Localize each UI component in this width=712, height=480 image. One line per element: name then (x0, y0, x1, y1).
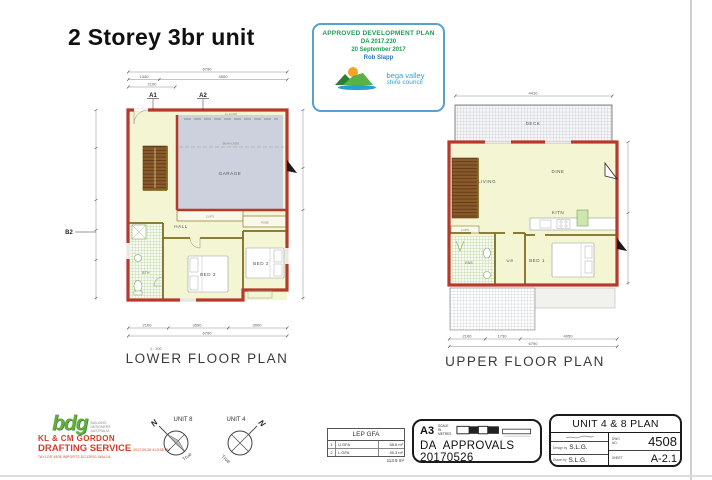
scale-caption-line2: METRES (438, 433, 452, 437)
bdg-association: BUILDING DESIGNERS AUSTRALIA (90, 421, 110, 433)
drawing-title: UNIT 4 & 8 PLAN (551, 416, 680, 433)
scale-caption: SCALE IN METRES (438, 425, 452, 436)
sheet-label: SHEET (612, 457, 623, 461)
stamp-line-2: DA 2017.230 (314, 39, 443, 45)
row-num: 1 (328, 441, 336, 448)
compass-unit4-label: UNIT 4 (227, 417, 247, 423)
drawn-by-cell: Drawn by S.L.G. (551, 455, 608, 467)
north-arrow-icon: N (149, 418, 160, 429)
sheet-size-label: A3 (420, 425, 434, 437)
lep-table-title: LEP GFA (327, 428, 405, 440)
stairs-lower (143, 146, 167, 190)
design-by-cell: Design by S.L.G. (551, 442, 608, 455)
drawn-by-label: Drawn by (553, 458, 566, 462)
garage-label: GARAGE (219, 171, 242, 176)
sheet-no-value: A-2.1 (651, 453, 677, 465)
dim-bot-seg1: 2100 (143, 323, 153, 328)
row-num: 2 (328, 449, 336, 456)
bdg-logo: bdg (52, 415, 87, 433)
scan-edge-bottom (0, 475, 712, 477)
compass-unit-4: UNIT 4 N True (210, 411, 272, 469)
dim-top-sub: 2100 (148, 82, 158, 87)
stamp-line-1: APPROVED DEVELOPMENT PLAN (314, 30, 443, 37)
section-a1: A1 (149, 93, 157, 99)
lower-floor-plan: 21.24 RID BEAM OVER CUP'S ROBE (60, 58, 315, 388)
row-value: 45.3 m² (379, 449, 404, 456)
da-approvals-box: A3 SCALE IN METRES DA APPROVALS 20170526 (412, 419, 542, 463)
row-value: 68.6 m² (379, 441, 404, 448)
dim-up-seg3: 4050 (564, 334, 574, 339)
section-a2: A2 (199, 93, 207, 99)
deck-label: DECK (526, 121, 541, 126)
dim-bot-seg2: 3590 (193, 323, 203, 328)
scan-edge-right (690, 0, 692, 480)
scale-bar-icon (456, 425, 534, 437)
true-north-label: True (220, 454, 232, 465)
beam-note: BEAM OVER (223, 142, 240, 146)
compass-unit8-label: UNIT 8 (174, 417, 194, 423)
stamp-line-3: 20 September 2017 (314, 47, 443, 53)
dwg-no-cell: DWG NO. 4508 (609, 433, 680, 451)
stairs-upper (452, 158, 478, 218)
council-name-line2: shire council (387, 80, 425, 87)
dwg-no-label: DWG NO. (612, 438, 620, 445)
kitn-label: KITN (552, 210, 564, 215)
upper-cups-label: CUP'S (461, 228, 469, 232)
dim-top-seg1: 1340 (140, 74, 150, 79)
assoc-line3: AUSTRALIA (90, 429, 110, 433)
da-approvals-text: DA APPROVALS 20170526 (420, 440, 534, 464)
upper-plan-title: UPPER FLOOR PLAN (445, 354, 605, 369)
table-row: 1 U.GFA 68.6 m² (328, 441, 404, 449)
dwg-label-line2: NO. (612, 442, 620, 446)
ens-label: ENS (465, 261, 473, 265)
garage-floor (177, 115, 283, 210)
bed3-label: BED 3 (200, 272, 216, 277)
dine-label: DINE (552, 169, 565, 174)
dim-top-seg2: 4500 (219, 74, 229, 79)
design-by-label: Design by (553, 446, 567, 450)
council-logo: bega valley shire council (314, 65, 443, 93)
table-row: 2 L.GFA 45.3 m² (328, 449, 404, 456)
dim-up-seg2: 1730 (498, 334, 508, 339)
lower-plan-title: LOWER FLOOR PLAN (126, 351, 289, 366)
hall-label: HALL (174, 224, 188, 229)
bed1-furniture (552, 243, 594, 277)
lower-deck (450, 288, 615, 330)
council-name: bega valley shire council (387, 72, 425, 87)
upper-deck: DECK (455, 105, 612, 142)
wir-label: WIR (506, 259, 514, 263)
dim-deck-width: 4410 (529, 91, 539, 96)
sheet-no-cell: SHEET A-2.1 (609, 451, 680, 466)
drawing-sheet: 2 Storey 3br unit APPROVED DEVELOPMENT P… (0, 0, 712, 480)
dim-up-seg1: 2100 (463, 334, 473, 339)
company-service-text: DRAFTING SERVICE (38, 443, 131, 454)
cups-label: CUP'S (206, 215, 214, 219)
dwg-no-value: 4508 (648, 434, 677, 449)
ridge-note: 21.24 RID (225, 112, 238, 116)
dim-bot-seg3: 3000 (253, 323, 263, 328)
council-logo-icon (333, 65, 385, 93)
lep-gfa-table: LEP GFA 1 U.GFA 68.6 m² 2 L.GFA 45.3 m² … (327, 428, 405, 463)
bed1-label: BED 1 (529, 258, 545, 263)
north-arrow-icon: N (257, 418, 268, 429)
stamp-line-4: Rob Slapp (314, 55, 443, 61)
dim-top-overall: 6790 (203, 67, 213, 72)
true-north-label: True (182, 451, 194, 462)
section-b2: B2 (65, 230, 73, 236)
page-title: 2 Storey 3br unit (68, 24, 255, 51)
row-label: L.GFA (336, 449, 379, 456)
title-block: UNIT 4 & 8 PLAN Design by S.L.G. Drawn b… (549, 414, 682, 467)
signature-cell (551, 433, 608, 442)
living-label: LIVING (478, 179, 496, 184)
robe-label: ROBE (261, 221, 269, 225)
upper-floor-plan: DECK CUP'S (425, 83, 640, 383)
signature-mark (565, 434, 595, 440)
row-label: U.GFA (336, 441, 379, 448)
compass-unit-8: UNIT 8 N True (146, 411, 208, 469)
bed2-label: BED 2 (253, 261, 269, 266)
drawn-by-value: S.L.G. (568, 457, 586, 464)
bth-label: BTH (142, 271, 150, 275)
dim-up-overall: 6790 (529, 341, 539, 346)
dim-bot-overall: 6790 (203, 331, 213, 336)
design-by-value: S.L.G. (569, 444, 587, 451)
lep-total: 113.9 m² (327, 458, 405, 463)
